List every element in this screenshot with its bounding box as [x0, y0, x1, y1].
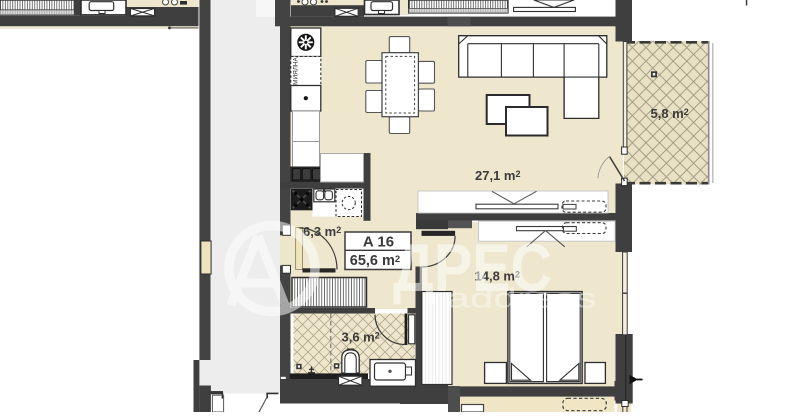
- svg-text:27,1 m2: 27,1 m2: [475, 168, 521, 183]
- svg-text:address: address: [447, 283, 597, 314]
- svg-text:A 16: A 16: [363, 234, 394, 251]
- svg-text:МИЯЛНА: МИЯЛНА: [293, 56, 300, 84]
- svg-text:6,3 m2: 6,3 m2: [303, 224, 341, 239]
- svg-text:3,6 m2: 3,6 m2: [342, 330, 380, 345]
- svg-text:5,8 m2: 5,8 m2: [651, 106, 689, 121]
